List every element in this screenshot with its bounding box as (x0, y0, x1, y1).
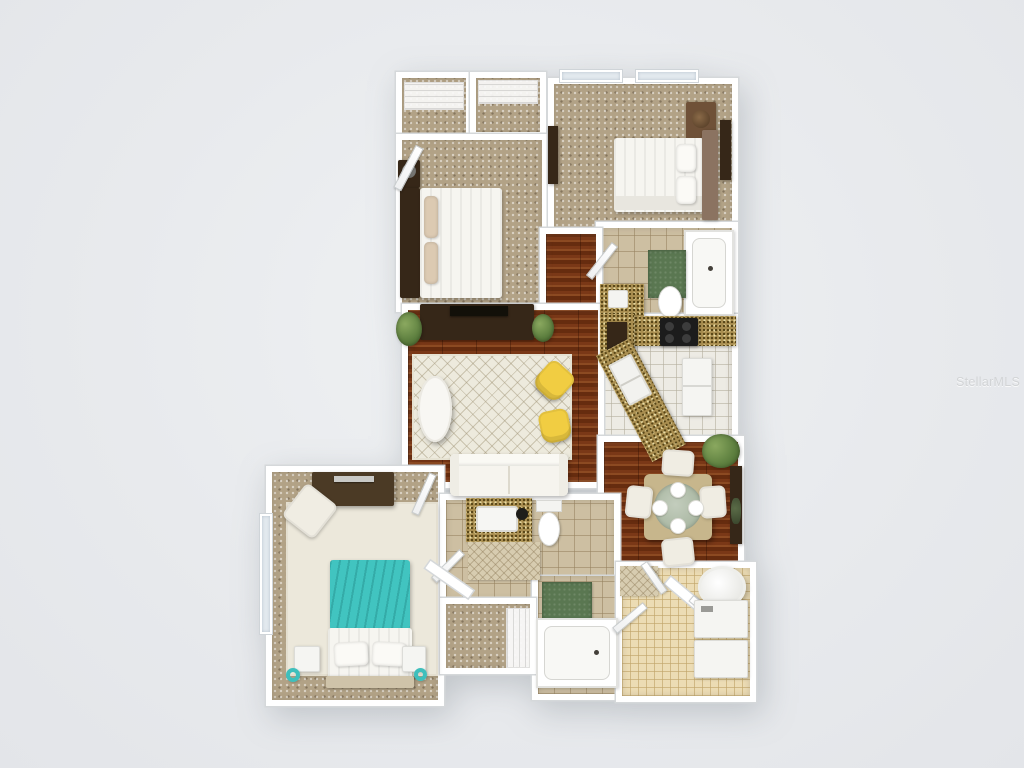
stellar-mls-watermark: StellarMLS (956, 375, 1020, 389)
headboard-bedroom2 (400, 188, 420, 298)
sofa-back (450, 454, 568, 466)
tv-on-dresser (334, 476, 374, 482)
sofa-arm-right (559, 454, 568, 496)
sofa-cushion-split (508, 466, 510, 494)
place-setting-south (670, 518, 686, 534)
bathtub1-basin (544, 626, 610, 680)
burner-2 (682, 322, 691, 331)
window-bedroom3-right (636, 70, 698, 82)
place-setting-east (688, 500, 704, 516)
screenshot-canvas: { "watermark": { "text": "StellarMLS" },… (0, 0, 1024, 768)
sink-bathroom1 (476, 506, 518, 532)
pillow-bedroom2-b (424, 242, 438, 284)
pillow-bedroom2-a (424, 196, 438, 238)
plant-dining-corner (702, 434, 740, 468)
patterned-mat-bathroom1 (468, 542, 540, 580)
pillow-bedroom1-a (333, 641, 368, 667)
refrigerator (682, 358, 712, 416)
window-bedroom1 (260, 514, 272, 634)
sink-basin-divider (620, 375, 640, 387)
sofa-living (450, 454, 568, 496)
teal-decor-right (414, 668, 427, 681)
plant-living-left (396, 312, 422, 346)
vanity-bathroom2 (600, 284, 644, 316)
lamp-bedroom3 (692, 110, 710, 128)
nightstand-bedroom1-left (294, 646, 320, 672)
wire-shelf-closet-1 (506, 608, 530, 668)
window-bedroom3-left (560, 70, 622, 82)
place-setting-west (652, 500, 668, 516)
dining-chair-north (661, 449, 695, 477)
toilet-bathroom2 (658, 286, 682, 318)
bed-bedroom1-footbench (326, 676, 414, 688)
fridge-door-split (683, 385, 711, 387)
dining-chair-east (699, 485, 727, 519)
plant-living-right (532, 314, 554, 342)
vanity-bathroom1 (466, 498, 532, 542)
toilet-tank-bathroom1 (536, 500, 562, 512)
bathtub1-drain (594, 650, 599, 655)
floor-plan (0, 0, 1024, 768)
bathtub-bathroom1 (536, 618, 618, 688)
dining-chair-south (661, 536, 696, 567)
wire-shelf-closet-a (404, 82, 464, 110)
washer-control (701, 606, 713, 612)
dryer (694, 640, 748, 678)
pillow-bedroom3-b (676, 176, 696, 204)
pillow-bedroom3-a (676, 144, 696, 172)
oval-coffee-table (418, 376, 452, 442)
flat-tv-living (450, 306, 508, 316)
wall-tv-bedroom3 (548, 126, 558, 184)
washer (694, 600, 748, 638)
bathtub2-basin (692, 238, 726, 308)
burner-3 (665, 334, 674, 343)
vessel-bowl-bathroom1 (516, 508, 528, 520)
range-stove (660, 318, 698, 346)
burner-4 (682, 334, 691, 343)
sofa-arm-left (450, 454, 459, 496)
dining-chair-west (624, 485, 653, 520)
burner-1 (665, 322, 674, 331)
headboard-bedroom3 (702, 130, 718, 220)
toilet-bathroom1 (538, 512, 560, 546)
wire-shelf-closet-b (478, 80, 538, 104)
wall-art-bedroom3 (720, 120, 731, 180)
wall-console-dining (730, 466, 742, 544)
teal-decor-left (286, 668, 300, 682)
bathtub-bathroom2 (684, 230, 734, 316)
plant-wall-console (731, 498, 741, 524)
bathtub2-drain (708, 266, 713, 271)
place-setting-north (670, 482, 686, 498)
bed-bedroom1-duvet (330, 560, 410, 630)
sink-bathroom2 (608, 290, 628, 308)
